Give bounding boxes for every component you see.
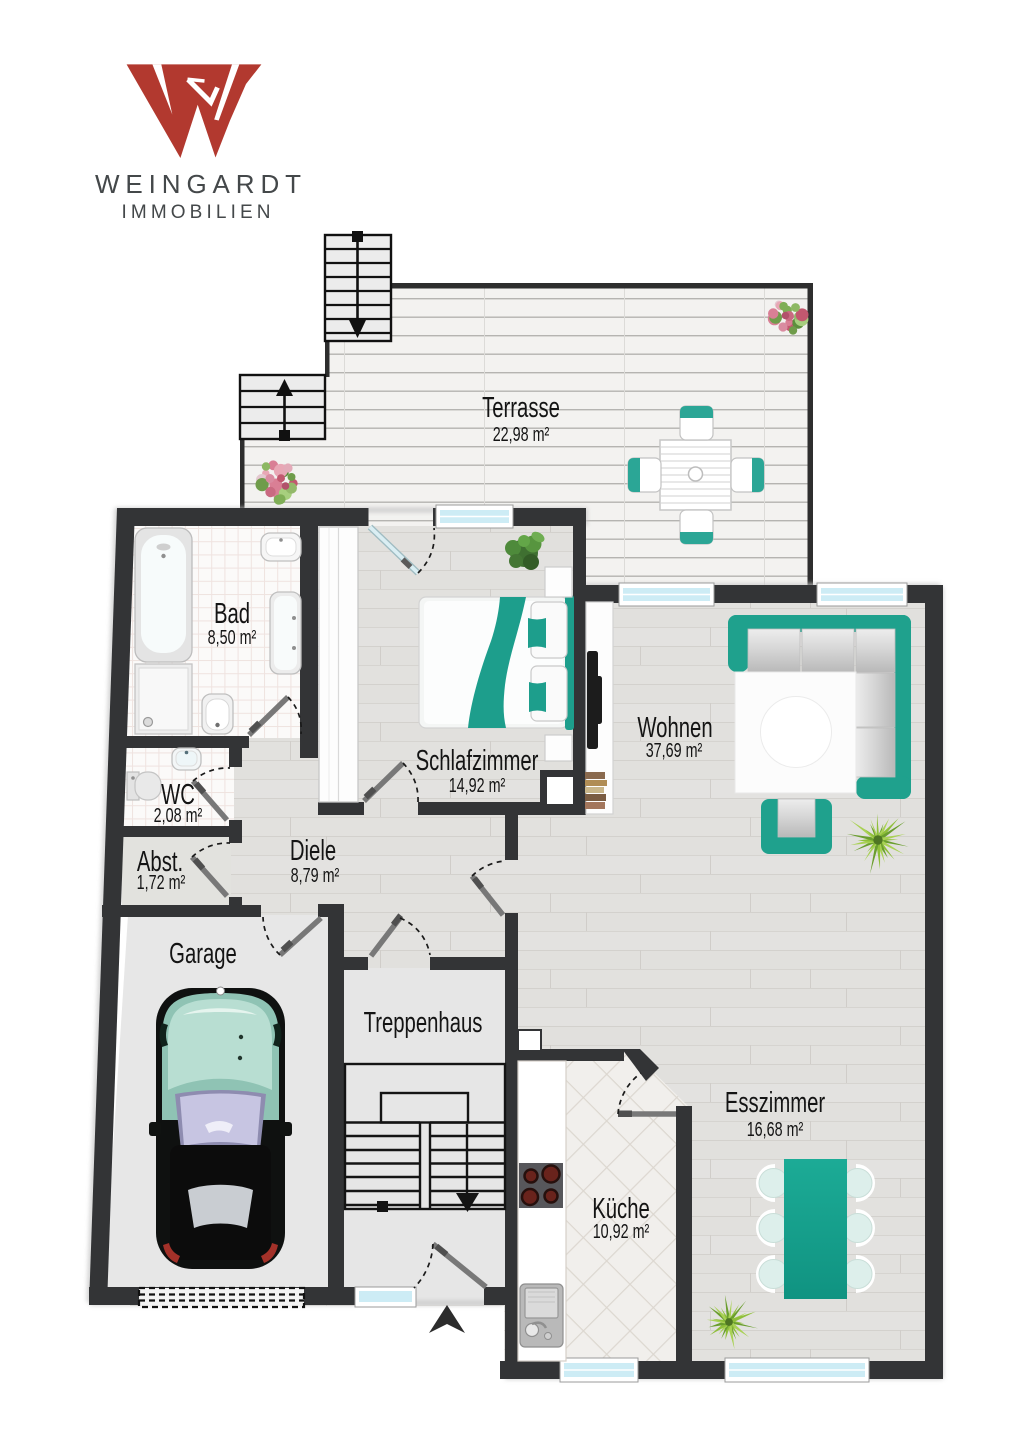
svg-text:Terrasse: Terrasse (482, 392, 560, 424)
svg-text:2,08 m²: 2,08 m² (154, 803, 203, 826)
svg-text:10,92 m²: 10,92 m² (593, 1219, 650, 1242)
svg-text:WEINGARDT: WEINGARDT (95, 169, 301, 199)
svg-text:22,98 m²: 22,98 m² (493, 422, 550, 445)
svg-text:Treppenhaus: Treppenhaus (364, 1007, 483, 1039)
svg-text:Garage: Garage (169, 938, 237, 970)
svg-text:8,79 m²: 8,79 m² (291, 863, 340, 886)
svg-text:14,92 m²: 14,92 m² (449, 773, 506, 796)
svg-text:IMMOBILIEN: IMMOBILIEN (122, 202, 271, 223)
svg-text:16,68 m²: 16,68 m² (747, 1117, 804, 1140)
svg-text:1,72 m²: 1,72 m² (137, 870, 186, 893)
svg-text:Diele: Diele (290, 835, 336, 867)
svg-text:Schlafzimmer: Schlafzimmer (416, 745, 539, 777)
svg-text:37,69 m²: 37,69 m² (646, 738, 703, 761)
svg-text:8,50 m²: 8,50 m² (208, 625, 257, 648)
svg-text:Esszimmer: Esszimmer (725, 1087, 825, 1119)
